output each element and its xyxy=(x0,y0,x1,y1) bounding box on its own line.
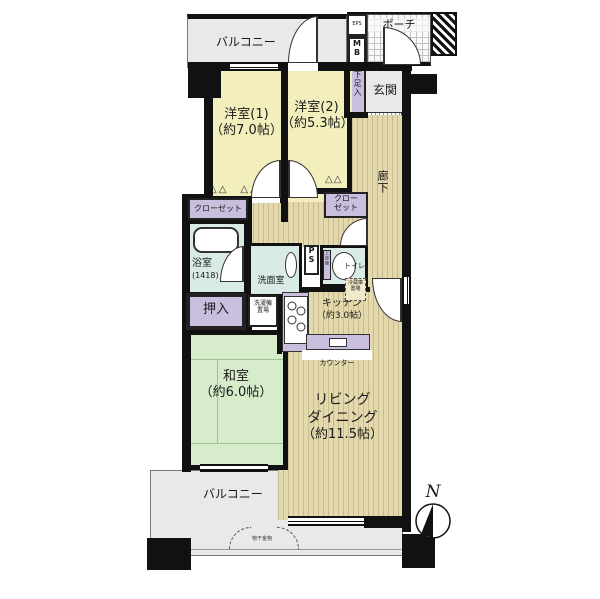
wall-pillar xyxy=(188,62,221,98)
bedroom2-name: 洋室(2) xyxy=(281,100,352,116)
bedroom1-name: 洋室(1) xyxy=(205,107,288,123)
wall-segment xyxy=(402,304,411,532)
kitchen-counter-bar xyxy=(306,334,370,350)
washitsu-size: （約6.0帖） xyxy=(189,385,283,401)
window xyxy=(402,277,411,304)
bedroom1-label: 洋室(1) （約7.0帖） xyxy=(205,107,288,140)
pipe-space: PS xyxy=(304,245,319,275)
living-line3: （約11.5帖） xyxy=(278,427,407,443)
washroom-label: 洗面室 xyxy=(251,276,291,287)
compass-n-label: N xyxy=(412,482,454,502)
living-line2: ダイニング xyxy=(278,410,407,428)
wall-segment xyxy=(344,62,350,118)
bathroom-label: 浴室 (1418) xyxy=(192,258,219,281)
bathroom-size: (1418) xyxy=(192,271,219,281)
fridge-space: 冷蔵庫置場 xyxy=(345,278,366,301)
wall-pillar xyxy=(147,538,191,570)
kitchen-label: キッチン （約3.0帖） xyxy=(310,298,374,322)
bedroom1-size: （約7.0帖） xyxy=(205,123,288,139)
laundry-hardware-icon xyxy=(229,527,251,549)
corridor-label: 廊下 xyxy=(374,170,390,194)
stove xyxy=(284,296,308,344)
laundry-space-label: 洗濯機置場 xyxy=(253,301,273,314)
living-line1: リビング xyxy=(278,392,407,410)
laundry-space: 洗濯機置場 xyxy=(248,295,278,327)
compass: N xyxy=(412,482,454,544)
eps-label: EPS xyxy=(349,21,365,27)
washitsu-name: 和室 xyxy=(189,369,283,385)
folding-door-icon: △△ xyxy=(325,174,342,185)
sink-icon xyxy=(285,252,297,278)
pipe-space-label: PS xyxy=(308,247,316,265)
oshiire-label: 押入 xyxy=(190,302,242,318)
counter-label-box: カウンター xyxy=(302,350,372,360)
bedroom2-label: 洋室(2) （約5.3帖） xyxy=(281,100,352,133)
closet1-label: クローゼット xyxy=(190,204,246,214)
fridge-space-label: 冷蔵庫置場 xyxy=(348,281,364,292)
window xyxy=(230,62,278,71)
bedroom2-size: （約5.3帖） xyxy=(281,116,352,132)
upper-shelf-label: 上部棚 xyxy=(324,251,330,266)
window xyxy=(288,516,364,526)
kitchen-size: （約3.0帖） xyxy=(310,311,374,322)
balcony-top-label: バルコニー xyxy=(216,35,276,50)
counter-sink-icon xyxy=(329,338,347,347)
balcony-top: バルコニー xyxy=(187,14,347,68)
wall-segment xyxy=(402,62,411,278)
washitsu-label: 和室 （約6.0帖） xyxy=(189,369,283,402)
counter-label: カウンター xyxy=(320,359,355,367)
wall-segment xyxy=(411,74,437,94)
door-opening xyxy=(288,62,318,71)
eps-box: EPS xyxy=(347,14,367,36)
tatami-line xyxy=(189,443,283,444)
entrance-label: 玄関 xyxy=(365,83,405,98)
laundry-hardware-icon xyxy=(277,527,299,549)
living-dining-label: リビング ダイニング （約11.5帖） xyxy=(278,392,407,443)
wall-segment xyxy=(347,115,352,192)
closet2-label: クローゼット xyxy=(332,195,360,213)
closet1: クローゼット xyxy=(188,198,248,220)
closet2: クローゼット xyxy=(324,192,368,218)
wall-segment xyxy=(364,516,411,528)
balcony-bottom-label: バルコニー xyxy=(203,487,263,502)
floor-plan: バルコニー バルコニー 物干金物 EPS MB ポーチ 玄関 下足入 廊下 リビ… xyxy=(0,0,600,599)
toilet-label: トイレ xyxy=(344,261,365,271)
shoe-cabinet-label: 下足入 xyxy=(352,70,363,97)
entrance: 玄関 xyxy=(365,66,405,118)
oshiire: 押入 xyxy=(186,293,246,330)
laundry-hardware-label: 物干金物 xyxy=(252,535,272,542)
upper-shelf: 上部棚 xyxy=(323,250,331,280)
washroom: 洗面室 xyxy=(248,243,302,297)
tatami-line xyxy=(189,359,283,360)
bathroom-name: 浴室 xyxy=(192,258,219,271)
washitsu: 和室 （約6.0帖） xyxy=(184,330,288,470)
stove-burners-icon xyxy=(285,297,307,343)
window xyxy=(200,464,268,472)
structure-hatch-block xyxy=(431,12,457,56)
wall-segment xyxy=(344,112,368,118)
compass-icon xyxy=(414,502,452,540)
meter-box-label: MB xyxy=(353,40,362,58)
